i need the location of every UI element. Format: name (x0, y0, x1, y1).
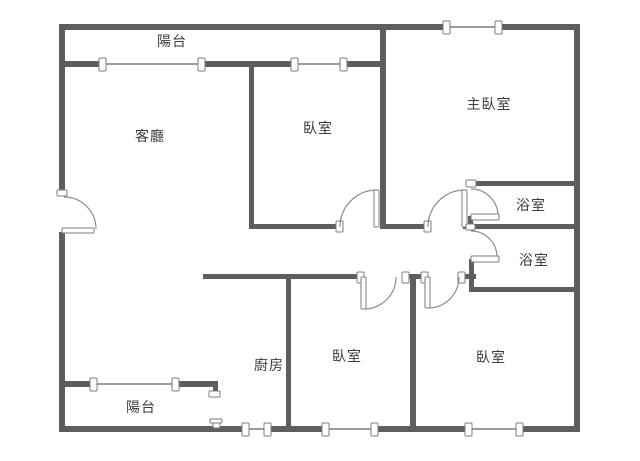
room-label-balcony-bottom: 陽台 (126, 397, 156, 417)
window-bedroom-bottom-middle (322, 423, 378, 436)
floor-plan-drawing (0, 0, 640, 461)
entry-door (57, 190, 96, 233)
bedroom-top-door (336, 190, 379, 232)
window-bedroom-bottom-right (465, 423, 523, 436)
room-label-bedroom-top: 臥室 (303, 118, 333, 138)
window-balcony-bottom (90, 378, 179, 391)
window-master-bedroom (443, 21, 502, 34)
master-suite-door (424, 190, 467, 232)
room-label-bedroom-bottom-right: 臥室 (476, 347, 506, 367)
interior-walls (59, 24, 580, 432)
room-label-master-bedroom: 主臥室 (467, 94, 512, 114)
bedroom-bottom-middle-door (357, 272, 409, 309)
floor-plan: 陽台 客廳 臥室 主臥室 浴室 浴室 廚房 臥室 臥室 陽台 (0, 0, 640, 461)
window-balcony-top (99, 58, 205, 71)
window-kitchen (242, 423, 271, 436)
bedroom-bottom-right-door (421, 272, 465, 308)
room-label-living-room: 客廳 (135, 126, 165, 146)
room-label-bathroom-lower: 浴室 (519, 250, 549, 270)
room-label-bathroom-upper: 浴室 (516, 195, 546, 215)
room-label-balcony-top: 陽台 (157, 31, 187, 51)
balcony-passage-cap (209, 391, 220, 397)
room-label-bedroom-bottom-middle: 臥室 (332, 346, 362, 366)
bathroom-lower-door (466, 224, 499, 262)
room-label-kitchen: 廚房 (254, 355, 284, 375)
window-bedroom-top (291, 58, 347, 71)
